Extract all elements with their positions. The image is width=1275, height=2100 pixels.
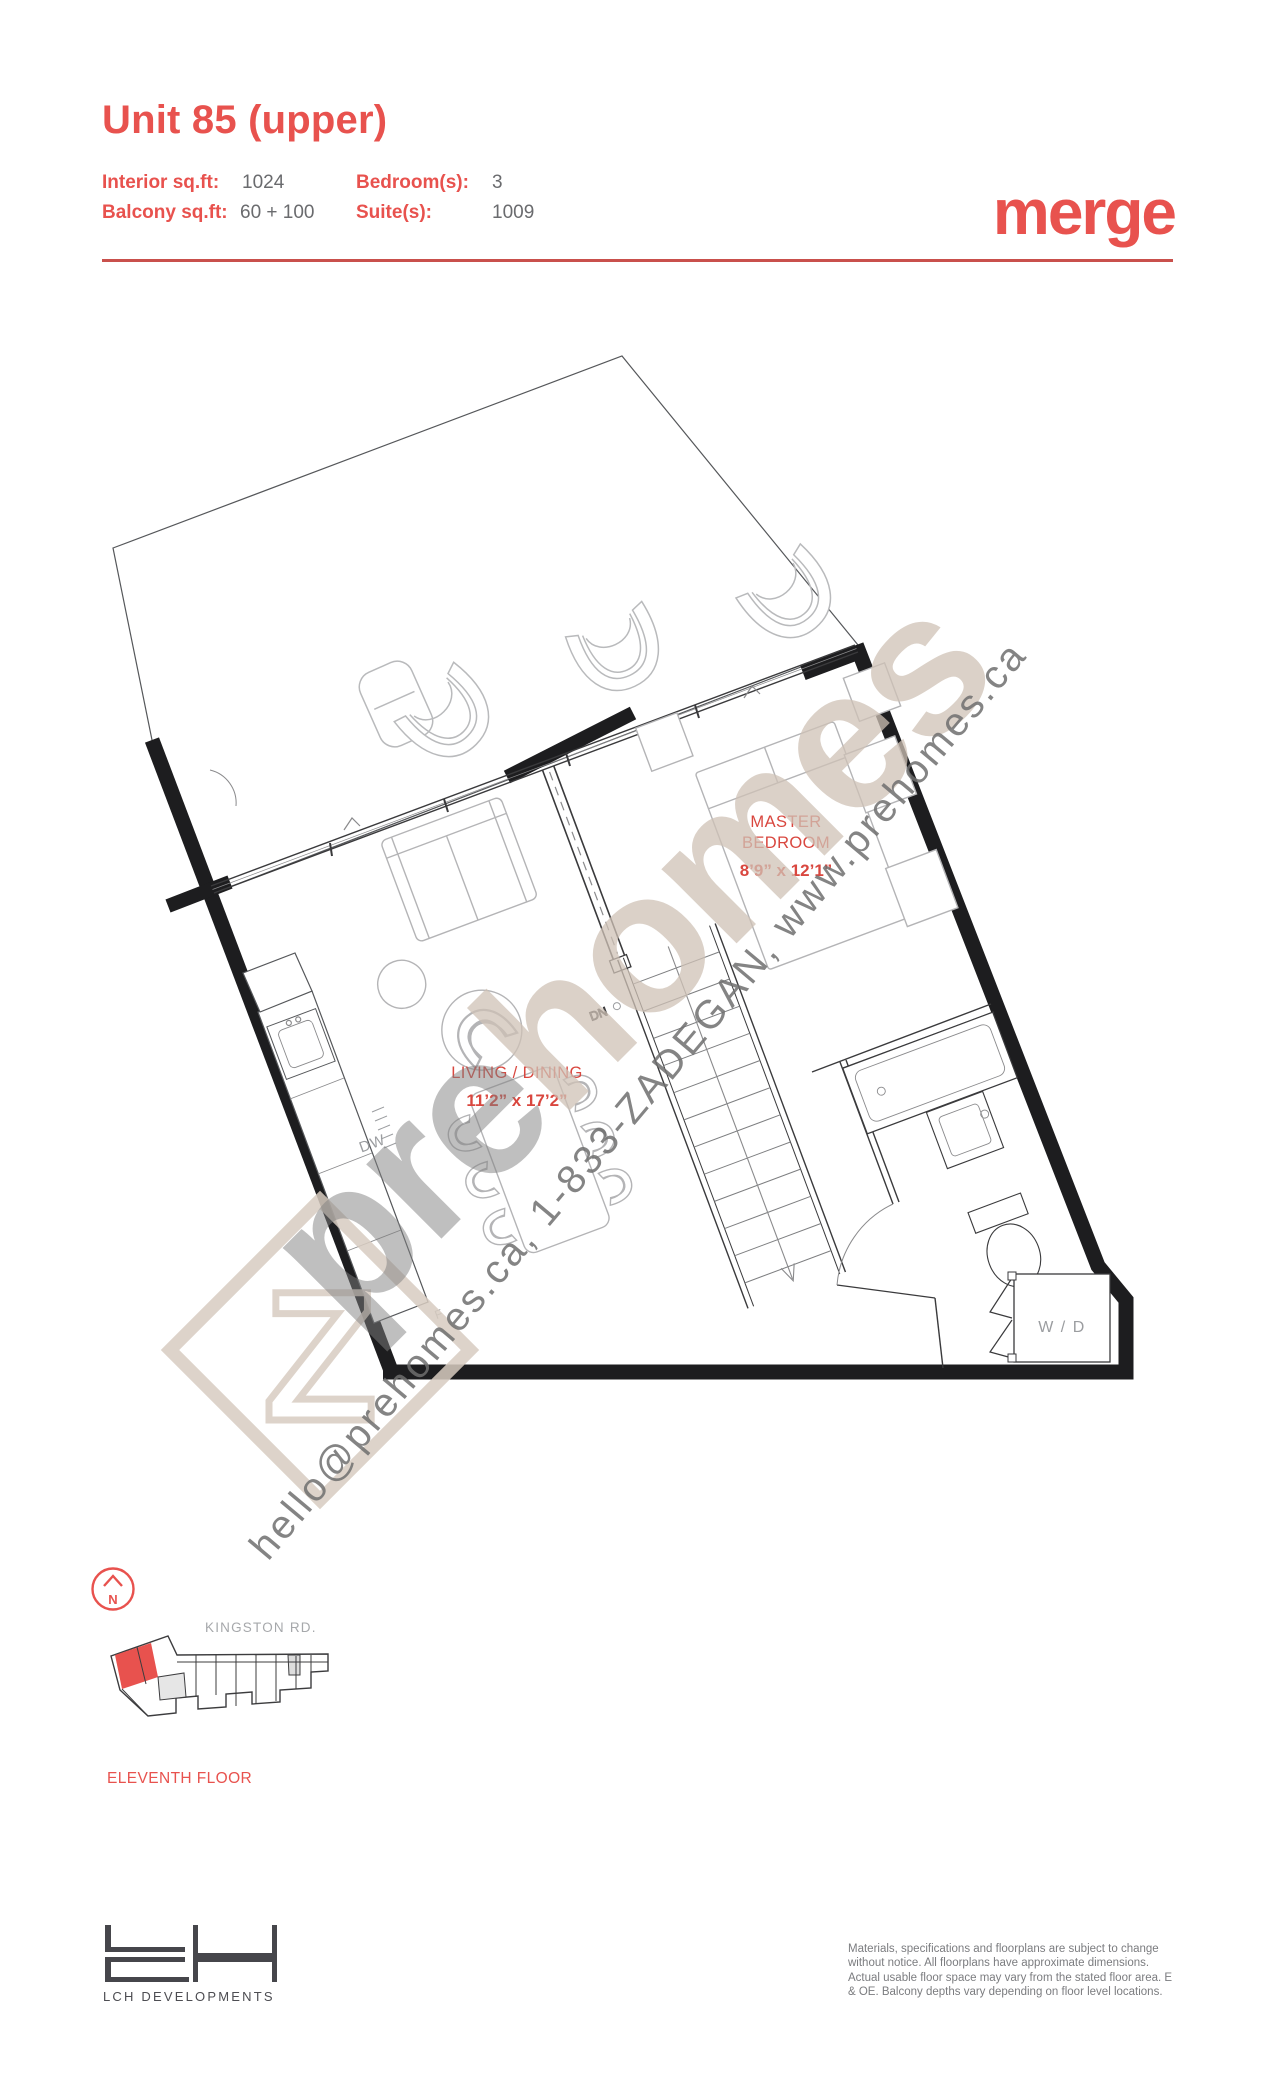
street-label: KINGSTON RD. <box>205 1620 317 1635</box>
north-arrow-icon: N <box>93 1569 134 1610</box>
svg-text:N: N <box>108 1592 117 1607</box>
developer-name: LCH DEVELOPMENTS <box>103 1989 275 2004</box>
watermark-brand: prehomes <box>221 551 1032 1362</box>
disclaimer-text: Materials, specifications and floorplans… <box>848 1942 1180 2000</box>
balcony-chair-icon <box>565 601 674 705</box>
building-footprint-map <box>111 1636 328 1716</box>
washer-dryer-label: W / D <box>1038 1319 1086 1336</box>
floor-level-label: ELEVENTH FLOOR <box>107 1770 252 1788</box>
lch-developments-logo <box>103 1924 279 1984</box>
laundry-closet <box>990 1272 1110 1362</box>
